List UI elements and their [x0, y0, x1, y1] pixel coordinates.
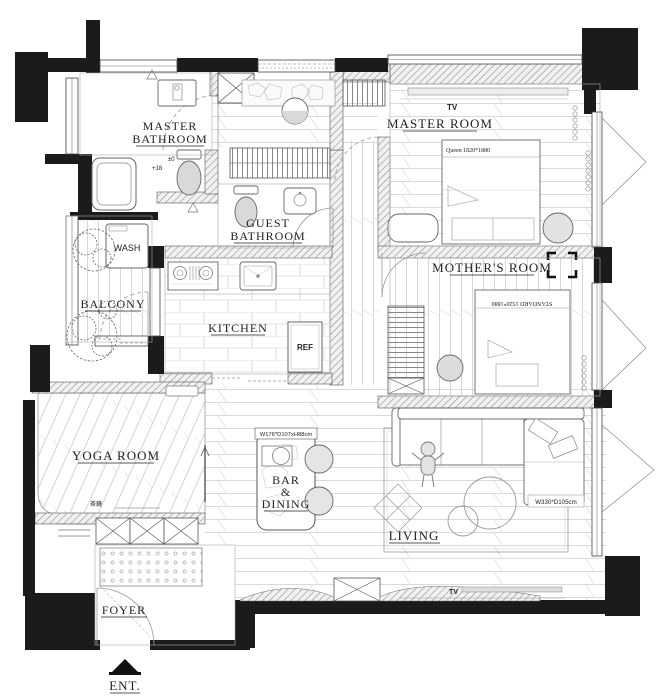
living-tv-label: TV	[449, 589, 458, 596]
ref-label: REF	[297, 343, 313, 352]
guest-bathroom-label-2: BATHROOM	[230, 229, 305, 243]
vent-lines	[58, 524, 90, 536]
wardrobe-louver-icon	[343, 80, 385, 106]
stool-icon	[543, 213, 573, 243]
level-triangle-icon	[188, 203, 198, 212]
stool-icon	[305, 445, 333, 473]
bathtub-icon	[92, 158, 136, 210]
entrance-label: ENT.	[109, 678, 141, 693]
bed-standard-icon: STANDARD 1520*1880	[475, 290, 570, 394]
refrigerator-icon: REF	[288, 322, 322, 372]
sofa-size-label: W330*D105cm	[535, 499, 577, 506]
entrance: ENT.	[109, 659, 141, 693]
foyer-label: FOYER	[102, 603, 146, 617]
foyer-mat	[100, 548, 202, 586]
guest-bathroom-label-1: GUEST	[246, 216, 290, 230]
tv-screen-icon	[462, 587, 562, 592]
balcony-label: BALCONY	[80, 297, 145, 311]
table-size-label: W176*D107xH88cm	[260, 432, 313, 438]
cooktop-icon	[262, 446, 292, 466]
bench-icon	[388, 214, 438, 242]
yoga-room-label: YOGA ROOM	[72, 448, 160, 463]
toilet-icon	[177, 150, 201, 195]
wardrobe-louver-icon	[388, 306, 424, 378]
balcony-kitchen-door	[150, 268, 160, 336]
master-tv-label: TV	[447, 103, 458, 112]
standard-bed-size-label: STANDARD 1520*1880	[492, 300, 553, 306]
level-mark-18: +18	[152, 166, 163, 172]
mat-icon	[166, 386, 198, 396]
cabinet-x-box	[388, 378, 424, 394]
master-room-label: MASTER ROOM	[387, 116, 493, 131]
corridor-floor	[343, 140, 378, 385]
bar-label-3: DINING	[262, 497, 311, 511]
vent-grille-top	[258, 60, 335, 72]
tv-console-icon	[408, 88, 568, 95]
floor-plan: MASTER BATHROOM ±0 +18 WASH	[0, 0, 660, 700]
sink-icon	[284, 188, 316, 214]
kitchen-sink-icon	[240, 262, 276, 290]
mothers-room-label: MOTHER'S ROOM	[432, 260, 552, 275]
entrance-arrow-icon	[112, 659, 138, 672]
kitchen-label: KITCHEN	[208, 321, 268, 335]
balcony-door-bottom	[95, 336, 148, 346]
casement-swings	[602, 118, 654, 512]
level-mark-zero: ±0	[168, 157, 175, 163]
tea-mirror-note: 茶鏡	[90, 500, 102, 508]
stool-icon	[437, 355, 463, 381]
bed-queen-icon: Queen 1820*1880	[442, 140, 540, 244]
living-label: LIVING	[389, 528, 440, 543]
queen-bed-size-label: Queen 1820*1880	[446, 148, 490, 154]
stove-icon	[168, 262, 218, 290]
master-bathroom-label-1: MASTER	[143, 119, 198, 133]
wash-label: WASH	[114, 243, 141, 253]
room-wash: WASH	[106, 224, 148, 268]
master-bathroom-label-2: BATHROOM	[132, 132, 207, 146]
floor-plan-svg: MASTER BATHROOM ±0 +18 WASH	[0, 0, 660, 700]
